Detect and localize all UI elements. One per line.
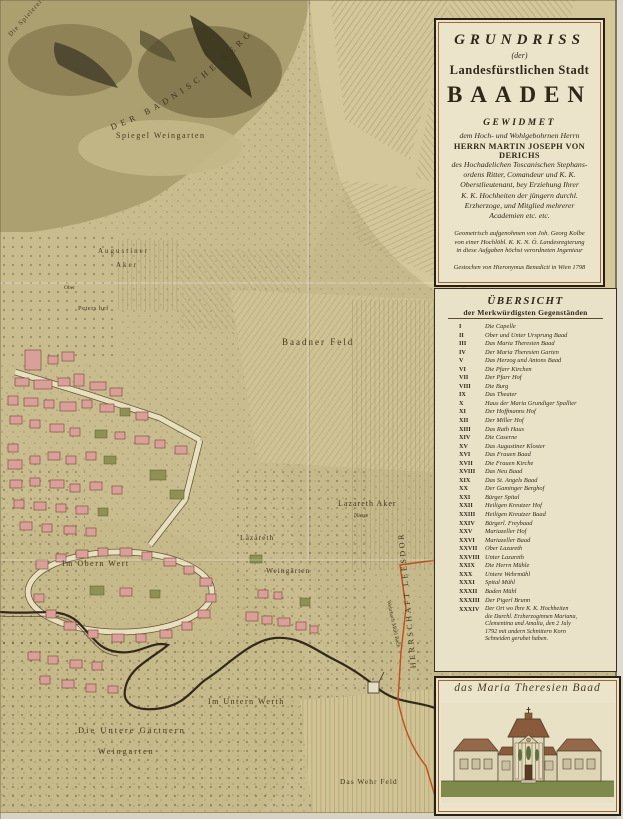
- legend-note-line: die Durchl. Erzherzoginnen Mariana,: [485, 614, 577, 622]
- legend-item-name: Die Caserne: [485, 434, 517, 441]
- legend-item: XXII Heiligen Kreutzer Hof: [435, 502, 616, 511]
- svg-text:HERRSCHAFT LEESDORF: HERRSCHAFT LEESDORF: [0, 0, 418, 669]
- legend-item-name: Der Pigerl Brunn: [485, 597, 530, 604]
- legend-item-name: Heiligen Kreutzer Hof: [485, 502, 542, 509]
- legend-item: XXIII Heiligen Kreutzer Baad: [435, 511, 616, 520]
- legend-item-numeral: XXI: [459, 494, 485, 501]
- legend-item-numeral: XIV: [459, 434, 485, 441]
- legend-item-numeral: XXVI: [459, 537, 485, 544]
- legend-item-name: Das Theater: [485, 391, 517, 398]
- legend-item-numeral: XXIX: [459, 562, 485, 569]
- map-label-weingarten: Weingarten: [98, 748, 155, 756]
- legend-item-numeral: IV: [459, 349, 485, 356]
- legend-item-numeral: II: [459, 332, 485, 339]
- legend-item-numeral: XI: [459, 408, 485, 415]
- illustration-caption: das Maria Theresien Baad: [436, 682, 619, 694]
- legend-item: V Das Herzog und Antons Baad: [435, 357, 616, 366]
- legend-item-numeral: XXV: [459, 528, 485, 535]
- legend-subheader: der Merkwürdigsten Gegenständen: [448, 308, 604, 319]
- legend-item-numeral: III: [459, 340, 485, 347]
- map-label-wehrbach-muehl: Wehrbach Mühl Bach: [385, 600, 400, 648]
- legend-item-name: Der Hoffmanns Hof: [485, 408, 536, 415]
- legend-item-numeral: XXXII: [459, 588, 485, 595]
- legend-item-name: Die Capelle: [485, 323, 516, 330]
- legend-item: III Das Maria Theresien Baad: [435, 340, 616, 349]
- map-label-spiegel-weingarten: Spiegel Weingarten: [116, 132, 206, 140]
- legend-item-numeral: V: [459, 357, 485, 364]
- map-label-baadner-feld: Baadner Feld: [282, 338, 354, 347]
- legend-item-numeral: VI: [459, 366, 485, 373]
- legend-note-lines: Der Ort wo Ihre K. K. Hochheitendie Durc…: [485, 606, 577, 644]
- map-sheet: DER BADNISCHE BERG HERRSCHAFT LEESDORF D…: [0, 0, 623, 819]
- legend-item-name: Der Miller Hof: [485, 417, 524, 424]
- map-label-spielerei: Die Spielerei Leopoldi: [8, 0, 67, 38]
- legend-item-numeral: XXX: [459, 571, 485, 578]
- legend-item-numeral: XXVIII: [459, 554, 485, 561]
- map-label-im-obern-wert: Im Obern Wert: [62, 560, 130, 568]
- legend-item-numeral: IX: [459, 391, 485, 398]
- legend-item-name: Heiligen Kreutzer Baad: [485, 511, 546, 518]
- legend-item: XVI Das Frauen Baad: [435, 451, 616, 460]
- legend-item-numeral: XVIII: [459, 468, 485, 475]
- map-label-herrschaft-leesdorf: HERRSCHAFT LEESDORF: [0, 0, 418, 669]
- legend-item-name: Der Gaminger Berghof: [485, 485, 544, 492]
- legend-item-name: Unter Lazareth: [485, 554, 524, 561]
- legend-item-name: Der Pfarr Hof: [485, 374, 522, 381]
- legend-item: XXIX Die Herrn Mühle: [435, 562, 616, 571]
- legend-item: XXXII Baden Mühl: [435, 588, 616, 597]
- legend-item-numeral: XV: [459, 443, 485, 450]
- legend-item: XI Der Hoffmanns Hof: [435, 408, 616, 417]
- legend-item-numeral: XVI: [459, 451, 485, 458]
- legend-item-name: Bürger Spital: [485, 494, 519, 501]
- map-label-ober: Ober: [64, 286, 75, 292]
- legend-item-numeral: XXIV: [459, 520, 485, 527]
- map-label-weingaerten: Weingärten: [266, 567, 310, 575]
- dedication-line: Erzherzoge, und Mitglied mehrerer: [436, 201, 603, 211]
- legend-item-numeral: XII: [459, 417, 485, 424]
- legend-item-numeral: X: [459, 400, 485, 407]
- legend-item-name: Das Neu Baad: [485, 468, 522, 475]
- map-label-peters: Peters bef: [78, 306, 109, 313]
- svg-text:DER BADNISCHE BERG: DER BADNISCHE BERG: [109, 27, 255, 132]
- legend-item: XII Der Miller Hof: [435, 417, 616, 426]
- title-der: (der): [436, 51, 603, 60]
- legend-item-name: Die Frauen Kirche: [485, 460, 533, 467]
- legend-item-numeral: XXXIII: [459, 597, 485, 604]
- map-label-badnische-berg: DER BADNISCHE BERG: [109, 27, 255, 132]
- legend-header: ÜBERSICHT: [435, 295, 616, 307]
- legend-item: XXI Bürger Spital: [435, 494, 616, 503]
- town-buildings: [8, 350, 318, 693]
- legend-item: IV Der Maria Theresien Garten: [435, 349, 616, 358]
- legend-item-name: Das Rath Haus: [485, 426, 524, 433]
- legend-item: VI Die Pfarr Kirchen: [435, 366, 616, 375]
- dedication-heading: GEWIDMET: [436, 118, 603, 128]
- legend-item-name: Der Maria Theresien Garten: [485, 349, 559, 356]
- map-label-das-wehr-feld: Das Wehr Feld: [340, 778, 398, 786]
- legend-item: X Haus der Maria Grundiger Spallier: [435, 400, 616, 409]
- legend-item: VIII Die Burg: [435, 383, 616, 392]
- legend-item: XV Das Augustiner Kloster: [435, 443, 616, 452]
- dedication-line: Academien etc. etc.: [436, 211, 603, 221]
- legend-note-line: Der Ort wo Ihre K. K. Hochheiten: [485, 606, 577, 614]
- engraver-line: Gestochen von Hieronymus Benedicti in Wi…: [436, 264, 603, 271]
- legend-item-numeral: XXXI: [459, 579, 485, 586]
- legend-item: XXVIII Unter Lazareth: [435, 554, 616, 563]
- map-label-lazareth: Lazareth: [240, 534, 274, 542]
- legend-item-name: Die Burg: [485, 383, 508, 390]
- legend-item: XIV Die Caserne: [435, 434, 616, 443]
- legend-item: XXVII Ober Lazareth: [435, 545, 616, 554]
- surveyor-lines: Geometrisch aufgenohmen von Joh. Georg K…: [436, 230, 603, 256]
- legend-note-numeral: XXXIV: [459, 606, 485, 644]
- legend-item: XXVI Mariazeller Baad: [435, 537, 616, 546]
- legend-item-name: Das Herzog und Antons Baad: [485, 357, 561, 364]
- legend-item-name: Die Herrn Mühle: [485, 562, 529, 569]
- legend-item-numeral: XVII: [459, 460, 485, 467]
- legend-panel: ÜBERSICHT der Merkwürdigsten Gegenstände…: [434, 288, 617, 672]
- legend-item: VII Der Pfarr Hof: [435, 374, 616, 383]
- theresienbad-map-marker: [368, 672, 384, 693]
- legend-item: I Die Capelle: [435, 323, 616, 332]
- surveyor-line: in diese Aufgaben höchst verordneten Ing…: [436, 247, 603, 256]
- legend-item-name: Das Augustiner Kloster: [485, 443, 545, 450]
- legend-item: XXXI Spital Mühl: [435, 579, 616, 588]
- legend-item: XVIII Das Neu Baad: [435, 468, 616, 477]
- legend-item: IX Das Theater: [435, 391, 616, 400]
- legend-item-name: Das St. Angels Baad: [485, 477, 537, 484]
- dedication-lines: des Hochadelichen Toscanischen Stephans-…: [436, 160, 603, 221]
- legend-item-name: Mariazeller Baad: [485, 537, 530, 544]
- dedication-intro: dem Hoch- und Wohlgebohrnen Herrn: [436, 131, 603, 140]
- legend-item-numeral: XXII: [459, 502, 485, 509]
- legend-item: XXIV Bürgerl. Freybaad: [435, 520, 616, 529]
- map-label-lazareth-aker: Lazareth Aker: [338, 500, 397, 508]
- dedication-line: des Hochadelichen Toscanischen Stephans-: [436, 160, 603, 170]
- legend-item: XIII Das Rath Haus: [435, 426, 616, 435]
- map-title: GRUNDRISS: [436, 32, 603, 49]
- legend-item-numeral: XXVII: [459, 545, 485, 552]
- surveyor-line: Geometrisch aufgenohmen von Joh. Georg K…: [436, 230, 603, 239]
- legend-item-name: Bürgerl. Freybaad: [485, 520, 532, 527]
- map-label-augustiner: Augustiner: [98, 248, 149, 255]
- map-label-untere-gaertnern: Die Untere Gärtnern: [78, 726, 186, 735]
- title-cartouche: GRUNDRISS (der) Landesfürstlichen Stadt …: [434, 18, 605, 287]
- dedication-line: K. K. Hochheiten der jüngern durchl.: [436, 191, 603, 201]
- legend-item-name: Ober Lazareth: [485, 545, 522, 552]
- legend-item-name: Die Pfarr Kirchen: [485, 366, 532, 373]
- legend-item-numeral: VII: [459, 374, 485, 381]
- legend-item-numeral: VIII: [459, 383, 485, 390]
- map-label-nasse: Nasse: [354, 513, 368, 519]
- legend-item: XXX Untere Wehrmühl: [435, 571, 616, 580]
- illustration-panel: das Maria Theresien Baad: [434, 676, 621, 816]
- map-label-im-untern-werth: Im Untern Werth: [208, 698, 285, 706]
- legend-item-name: Ober und Unter Ursprung Baad: [485, 332, 567, 339]
- town-gardens: [90, 408, 310, 606]
- theresienbad-illustration: [441, 700, 614, 806]
- legend-item-numeral: XX: [459, 485, 485, 492]
- legend-note-line: Clementina und Amalia, den 2 July: [485, 621, 577, 629]
- legend-item: XXXIII Der Pigerl Brunn: [435, 597, 616, 606]
- legend-item: XXV Mariazeller Hof: [435, 528, 616, 537]
- legend-item-numeral: XIII: [459, 426, 485, 433]
- legend-items: I Die Capelle II Ober und Unter Ursprung…: [435, 323, 616, 605]
- legend-item-name: Baden Mühl: [485, 588, 516, 595]
- legend-item-name: Das Frauen Baad: [485, 451, 531, 458]
- legend-item-name: Mariazeller Hof: [485, 528, 526, 535]
- surveyor-line: von einer Hochlöbl. K. K. N. Ö. Landesre…: [436, 239, 603, 248]
- legend-item-name: Haus der Maria Grundiger Spallier: [485, 400, 577, 407]
- legend-note: XXXIV Der Ort wo Ihre K. K. Hochheitendi…: [435, 606, 616, 644]
- dedication-line: Oberstlieutenant, bey Erziehung Ihrer: [436, 180, 603, 190]
- map-label-aker: Aker: [116, 262, 138, 269]
- legend-item: XVII Die Frauen Kirche: [435, 460, 616, 469]
- legend-item-name: Spital Mühl: [485, 579, 515, 586]
- legend-item-numeral: I: [459, 323, 485, 330]
- title-stadt: Landesfürstlichen Stadt: [436, 63, 603, 78]
- title-baaden: BAADEN: [436, 82, 603, 108]
- legend-item-numeral: XXIII: [459, 511, 485, 518]
- legend-item: II Ober und Unter Ursprung Baad: [435, 332, 616, 341]
- dedicatee-name: HERRN MARTIN JOSEPH VON DERICHS: [436, 142, 603, 160]
- legend-item-numeral: XIX: [459, 477, 485, 484]
- legend-note-line: 1792 mit andern Schnittern Korn: [485, 629, 577, 637]
- legend-item-name: Untere Wehrmühl: [485, 571, 530, 578]
- legend-item: XIX Das St. Angels Baad: [435, 477, 616, 486]
- legend-note-line: Schneiden geruhet haben.: [485, 636, 577, 644]
- legend-item: XX Der Gaminger Berghof: [435, 485, 616, 494]
- legend-item-name: Das Maria Theresien Baad: [485, 340, 555, 347]
- dedication-line: ordens Ritter, Comandeur und K. K.: [436, 170, 603, 180]
